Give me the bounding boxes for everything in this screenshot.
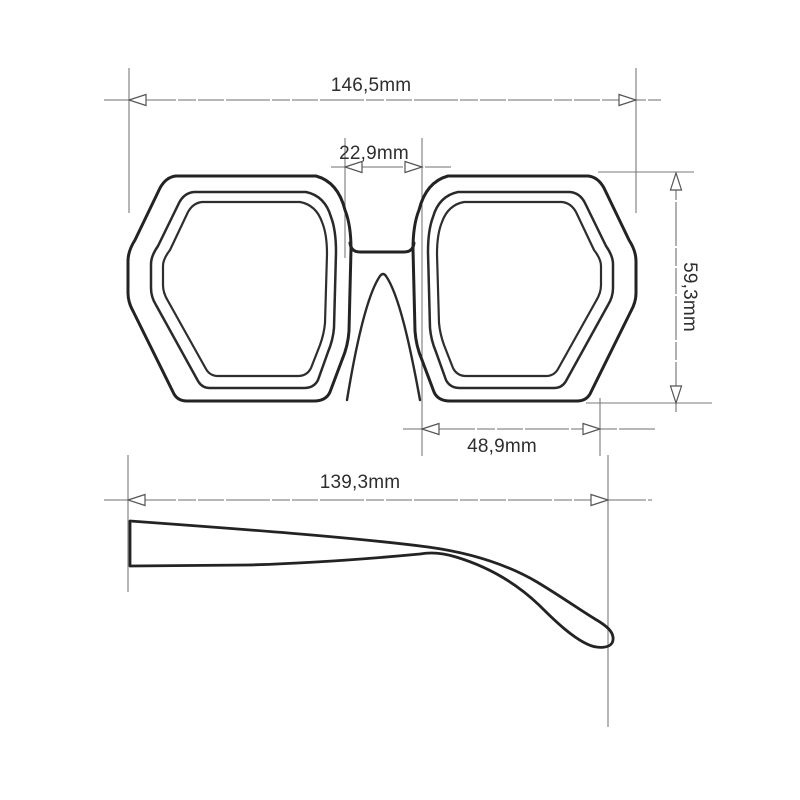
right-lens-inner-outline xyxy=(437,202,601,376)
left-lens-outer-outline xyxy=(128,176,351,401)
temple-outline xyxy=(130,521,613,647)
right-lens-middle-outline xyxy=(428,192,613,388)
arrowhead-left xyxy=(129,95,146,106)
arrowhead-right xyxy=(591,495,608,506)
drawing-canvas: 146,5mm 22,9mm 59,3mm 48,9mm xyxy=(0,0,800,800)
dimension-label-temple-length: 139,3mm xyxy=(320,472,401,493)
right-lens-outer-outline xyxy=(413,176,636,401)
nose-arch xyxy=(347,274,420,400)
dimension-lens-width: 48,9mm xyxy=(403,398,655,457)
dimension-label-total-width: 146,5mm xyxy=(331,75,412,96)
arrowhead-left xyxy=(128,495,145,506)
dimension-total-width: 146,5mm xyxy=(104,68,661,213)
arrowhead-right xyxy=(583,424,600,435)
dimension-temple-length: 139,3mm xyxy=(104,455,652,727)
arrowhead-up xyxy=(671,173,682,190)
arrowhead-right xyxy=(619,95,636,106)
arrowhead-left xyxy=(422,424,439,435)
front-view xyxy=(128,176,636,401)
bridge-outline xyxy=(350,243,414,252)
left-lens-inner-outline xyxy=(163,202,327,376)
arrowhead-down xyxy=(671,386,682,403)
dimension-label-lens-width: 48,9mm xyxy=(467,436,537,457)
side-view xyxy=(130,521,613,647)
dimension-lens-height: 59,3mm xyxy=(586,172,712,412)
dimension-label-lens-height: 59,3mm xyxy=(679,262,700,332)
dimension-label-bridge-width: 22,9mm xyxy=(339,143,409,164)
sunglasses-dimension-diagram: 146,5mm 22,9mm 59,3mm 48,9mm xyxy=(0,0,800,800)
left-lens-middle-outline xyxy=(151,192,336,388)
